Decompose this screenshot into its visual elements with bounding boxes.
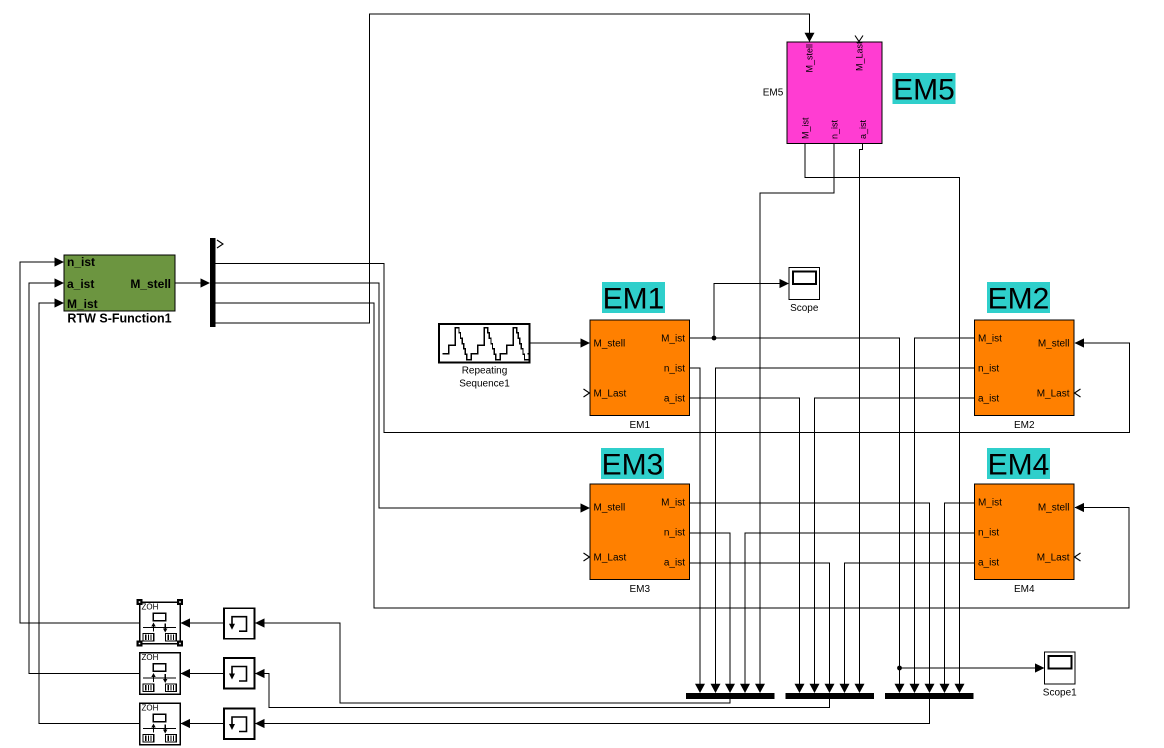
svg-text:a_ist: a_ist	[664, 394, 685, 405]
svg-text:n_ist: n_ist	[664, 364, 685, 375]
svg-text:M_stell: M_stell	[594, 503, 626, 514]
svg-text:EM2: EM2	[988, 283, 1050, 316]
svg-text:n_ist: n_ist	[978, 528, 999, 539]
svg-text:Scope: Scope	[790, 303, 819, 314]
svg-text:M_Last: M_Last	[594, 553, 627, 564]
svg-text:M_ist: M_ist	[978, 334, 1002, 345]
svg-text:M_ist: M_ist	[661, 334, 685, 345]
svg-text:a_ist: a_ist	[858, 119, 868, 139]
svg-text:n_ist: n_ist	[978, 364, 999, 375]
svg-text:a_ist: a_ist	[67, 277, 94, 291]
svg-text:a_ist: a_ist	[978, 558, 999, 569]
svg-text:n_ist: n_ist	[830, 119, 840, 139]
svg-text:EM2: EM2	[1014, 420, 1035, 431]
svg-text:Repeating: Repeating	[462, 366, 508, 377]
svg-text:EM5: EM5	[763, 88, 784, 99]
svg-text:Sequence1: Sequence1	[459, 379, 510, 390]
svg-text:EM3: EM3	[629, 584, 650, 595]
svg-text:M_ist: M_ist	[801, 117, 811, 139]
svg-text:M_stell: M_stell	[1038, 503, 1070, 514]
svg-text:M_stell: M_stell	[130, 277, 171, 291]
svg-text:M_stell: M_stell	[805, 44, 815, 73]
svg-text:M_Last: M_Last	[855, 41, 865, 71]
svg-text:M_Last: M_Last	[1037, 389, 1070, 400]
svg-text:M_ist: M_ist	[978, 498, 1002, 509]
svg-text:RTW S-Function1: RTW S-Function1	[67, 312, 171, 326]
svg-text:n_ist: n_ist	[67, 255, 95, 269]
svg-text:EM4: EM4	[1014, 584, 1035, 595]
svg-text:EM3: EM3	[602, 449, 664, 482]
svg-text:ZOH: ZOH	[142, 704, 159, 713]
svg-text:n_ist: n_ist	[664, 528, 685, 539]
svg-text:ZOH: ZOH	[142, 603, 159, 612]
svg-text:a_ist: a_ist	[978, 394, 999, 405]
svg-text:Scope1: Scope1	[1043, 688, 1077, 699]
svg-text:M_ist: M_ist	[67, 297, 98, 311]
svg-text:M_stell: M_stell	[594, 339, 626, 350]
svg-text:a_ist: a_ist	[664, 558, 685, 569]
svg-text:M_Last: M_Last	[1037, 553, 1070, 564]
svg-text:M_ist: M_ist	[661, 498, 685, 509]
svg-text:ZOH: ZOH	[142, 653, 159, 662]
svg-text:EM5: EM5	[893, 74, 955, 107]
svg-text:EM4: EM4	[988, 449, 1050, 482]
svg-text:EM1: EM1	[629, 420, 650, 431]
svg-text:M_stell: M_stell	[1038, 339, 1070, 350]
svg-text:EM1: EM1	[603, 283, 665, 316]
svg-text:M_Last: M_Last	[594, 389, 627, 400]
